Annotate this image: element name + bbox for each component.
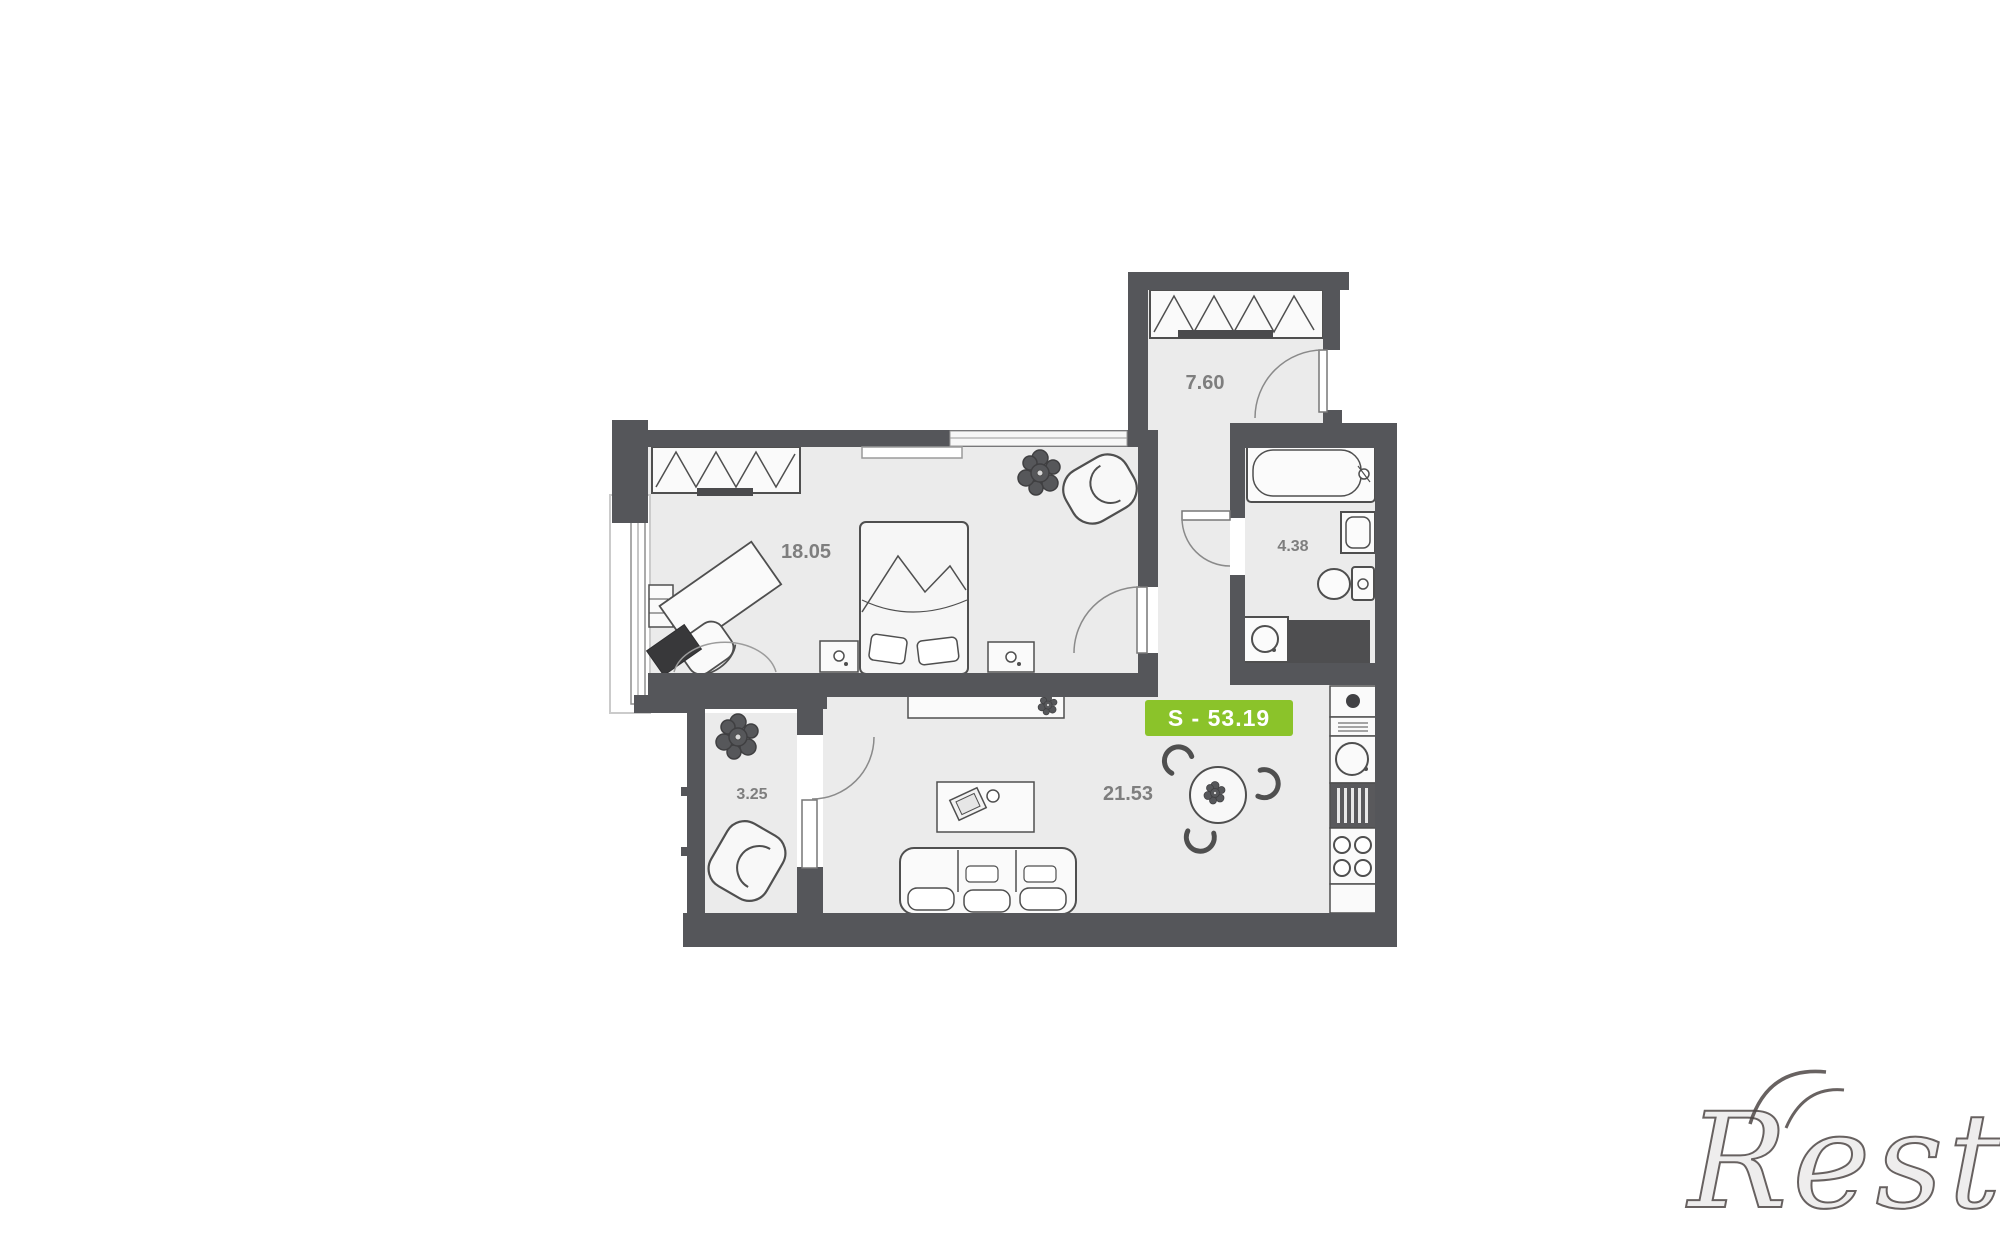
kitchen-counter-icon xyxy=(1330,686,1376,913)
nightstand-icon xyxy=(820,641,858,672)
coffee-table-icon xyxy=(937,782,1034,832)
bathtub-icon xyxy=(1247,444,1375,502)
lamp-icon xyxy=(834,651,844,661)
stove-icon xyxy=(1330,828,1376,884)
duct-shaft xyxy=(1288,620,1370,664)
total-area-badge-text: S - 53.19 xyxy=(1168,705,1270,731)
area-label-entrance-hall: 7.60 xyxy=(1186,372,1225,394)
lamp-icon xyxy=(1006,652,1016,662)
area-label-bedroom: 18.05 xyxy=(781,541,831,563)
nightstand-icon xyxy=(988,642,1034,672)
floor-plan-svg: 7.60 18.05 4.38 3.25 21.53 S - 53.19 xyxy=(0,0,2000,1223)
washing-machine-icon xyxy=(1243,617,1288,662)
wall-tick xyxy=(681,847,690,856)
wardrobe-icon xyxy=(1150,290,1323,338)
floor-plan-page: 7.60 18.05 4.38 3.25 21.53 S - 53.19 Res… xyxy=(0,0,2000,1223)
pillow-icon xyxy=(868,634,907,665)
kitchen-sink-icon xyxy=(1330,736,1376,783)
area-label-living-room: 21.53 xyxy=(1103,783,1153,805)
oven-icon xyxy=(1330,783,1376,828)
total-area-badge: S - 53.19 xyxy=(1145,700,1293,736)
sink-icon xyxy=(1341,512,1375,553)
wardrobe-icon xyxy=(652,447,800,496)
bed-icon xyxy=(860,522,968,674)
floor-corridor xyxy=(1158,430,1230,697)
wall-tick xyxy=(681,787,690,796)
watermark-swash-icon xyxy=(1742,1062,1872,1132)
area-label-bathroom: 4.38 xyxy=(1277,538,1308,555)
radiator-icon xyxy=(862,447,962,458)
area-label-hall: 3.25 xyxy=(736,786,767,803)
balcony xyxy=(610,495,650,713)
pillow-icon xyxy=(917,637,960,666)
sofa-icon xyxy=(900,848,1076,914)
